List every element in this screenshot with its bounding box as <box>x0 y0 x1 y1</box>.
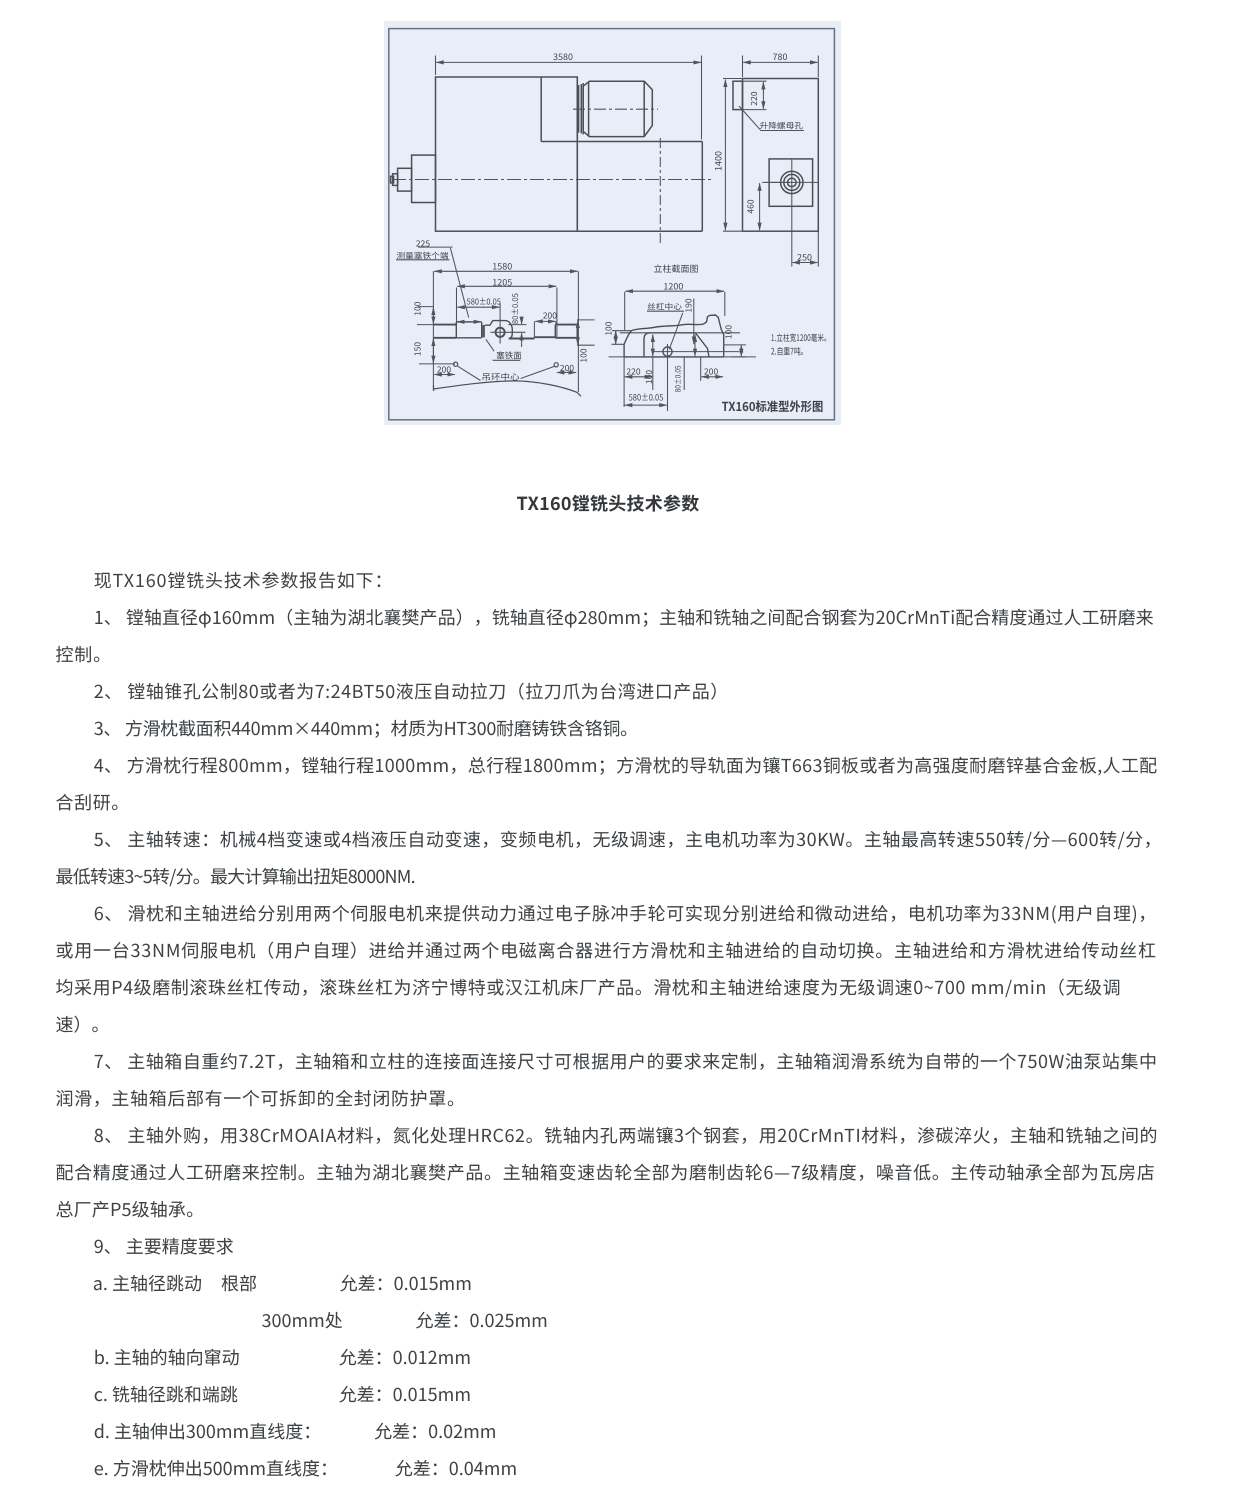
svg-text:2.自重7吨。: 2.自重7吨。 <box>771 345 808 358</box>
svg-text:100: 100 <box>643 370 655 384</box>
svg-text:100: 100 <box>603 321 615 335</box>
svg-text:1580: 1580 <box>492 260 512 273</box>
svg-text:1200: 1200 <box>663 279 683 292</box>
svg-text:立柱截面图: 立柱截面图 <box>654 262 699 275</box>
svg-text:460: 460 <box>745 199 757 213</box>
svg-text:TX160标准型外形图: TX160标准型外形图 <box>722 396 824 415</box>
svg-text:220: 220 <box>626 365 640 377</box>
svg-text:580±0.05: 580±0.05 <box>467 296 502 308</box>
svg-text:225: 225 <box>416 238 430 250</box>
svg-text:80±0.05: 80±0.05 <box>510 293 521 324</box>
svg-text:190: 190 <box>683 298 695 312</box>
svg-text:200: 200 <box>543 309 557 321</box>
svg-text:升降螺母孔: 升降螺母孔 <box>760 121 804 132</box>
svg-text:200: 200 <box>704 365 718 377</box>
svg-text:200: 200 <box>560 362 574 374</box>
svg-text:220: 220 <box>748 91 760 105</box>
svg-text:1205: 1205 <box>492 276 512 289</box>
svg-text:100: 100 <box>578 348 590 362</box>
svg-text:780: 780 <box>773 50 788 63</box>
svg-text:3580: 3580 <box>553 50 573 63</box>
svg-text:测量塞铁个端: 测量塞铁个端 <box>397 251 449 262</box>
svg-text:100: 100 <box>723 325 735 339</box>
svg-text:200: 200 <box>437 364 451 376</box>
svg-text:1400: 1400 <box>712 151 725 171</box>
svg-text:250: 250 <box>797 251 812 264</box>
svg-text:塞铁面: 塞铁面 <box>496 349 522 361</box>
svg-text:580±0.05: 580±0.05 <box>629 391 664 404</box>
svg-text:100: 100 <box>412 301 424 315</box>
svg-text:80±0.05: 80±0.05 <box>673 365 684 392</box>
svg-text:1.立柱宽1200毫米。: 1.立柱宽1200毫米。 <box>771 331 831 344</box>
svg-text:丝杠中心: 丝杠中心 <box>647 302 682 313</box>
svg-text:150: 150 <box>412 342 424 356</box>
svg-text:吊环中心: 吊环中心 <box>482 371 521 383</box>
